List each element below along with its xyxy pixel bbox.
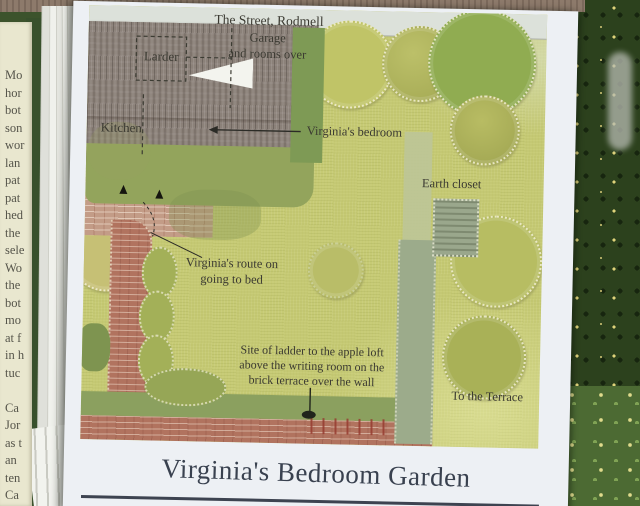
page-edge-text-line: ten <box>5 471 32 489</box>
page-edge-text-line: Wo <box>5 261 32 279</box>
route-label-line2: going to bed <box>171 271 291 289</box>
page-edge-text-line: tuc <box>5 366 32 384</box>
wisteria-walk <box>394 240 436 445</box>
facing-page-text-column: MohorbotsonworlanpatpathedtheseleWothebo… <box>5 68 32 506</box>
dark-leaf-tree <box>441 315 527 401</box>
route-label-line1: Virginia's route on <box>172 255 292 273</box>
page-edge-text-line: the <box>5 278 32 296</box>
page-edge-text-line: the <box>5 226 32 244</box>
page-edge-text-line: as t <box>5 436 32 454</box>
garden-map: The Street, Rodmell Larder Garage and ro… <box>80 5 547 448</box>
tree-trunk-background <box>608 52 632 150</box>
page-caption-title: Virginia's Bedroom Garden <box>63 450 569 497</box>
book-page: The Street, Rodmell Larder Garage and ro… <box>63 1 579 506</box>
page-edge-text-line: hor <box>5 86 32 104</box>
page-edge-text-line: pat <box>5 191 32 209</box>
garage-label-line2: and rooms over <box>212 46 322 63</box>
page-edge-text-line: sele <box>5 243 32 261</box>
page-edge-text-line: Mo <box>5 68 32 86</box>
terrace-label: To the Terrace <box>435 388 539 405</box>
earth-closet-structure <box>432 198 479 257</box>
bedroom-label: Virginia's bedroom <box>307 124 403 141</box>
page-edge-text-line: an <box>5 453 32 471</box>
page-edge-text-line: bot <box>5 296 32 314</box>
ladder-label-line3: brick terrace over the wall <box>211 372 411 391</box>
page-edge-text-line: in h <box>5 348 32 366</box>
earth-closet-label: Earth closet <box>401 176 501 193</box>
kitchen-label: Kitchen <box>101 119 142 136</box>
larder-label: Larder <box>136 48 186 65</box>
red-flower-patch <box>80 323 110 372</box>
caption-rule <box>81 495 539 506</box>
olive-tree <box>449 95 520 166</box>
page-edge-text-line: at f <box>5 331 32 349</box>
page-edge-text-line: mo <box>5 313 32 331</box>
book-photo-scene: MohorbotsonworlanpatpathedtheseleWothebo… <box>0 0 640 506</box>
page-edge-text-line <box>5 383 32 401</box>
page-edge-text-line: Ca <box>5 488 32 506</box>
page-edge-text-line: son <box>5 121 32 139</box>
page-edge-text-line: pat <box>5 173 32 191</box>
page-edge-text-line: wor <box>5 138 32 156</box>
delphinium-bed <box>168 189 261 241</box>
garage-label-line1: Garage <box>213 30 323 47</box>
page-edge-text-line: Ca <box>5 401 32 419</box>
page-edge-text-line: bot <box>5 103 32 121</box>
facing-page: MohorbotsonworlanpatpathedtheseleWothebo… <box>0 22 32 506</box>
page-edge-text-line: hed <box>5 208 32 226</box>
page-edge-text-line: Jor <box>5 418 32 436</box>
lawn-bush <box>307 242 364 299</box>
page-edge-text-line: lan <box>5 156 32 174</box>
